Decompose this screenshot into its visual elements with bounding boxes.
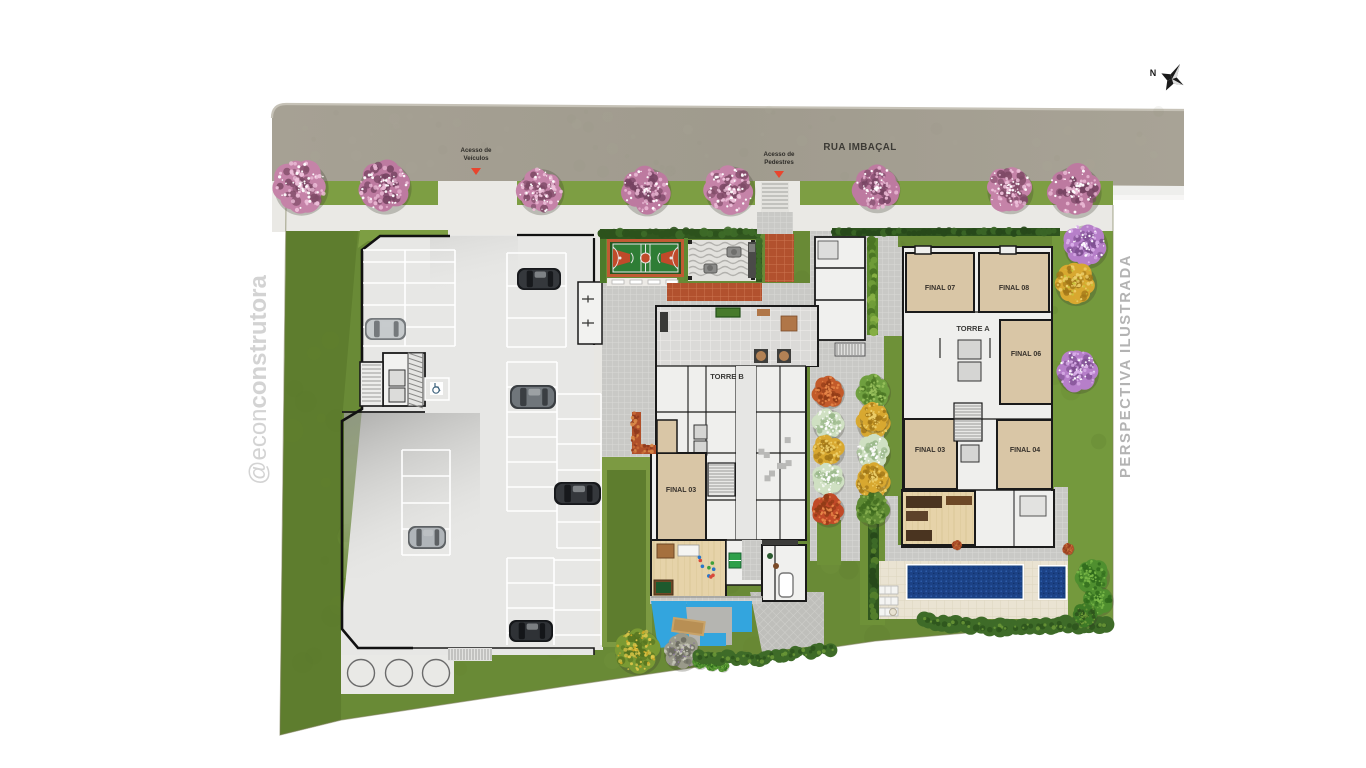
- svg-text:FINAL 04: FINAL 04: [1010, 447, 1040, 454]
- svg-text:FINAL 06: FINAL 06: [1011, 351, 1041, 358]
- svg-text:@econconstrutora: @econconstrutora: [245, 274, 272, 484]
- svg-text:TORRE B: TORRE B: [710, 372, 744, 381]
- svg-text:PERSPECTIVA ILUSTRADA: PERSPECTIVA ILUSTRADA: [1118, 254, 1134, 478]
- svg-text:Veículos: Veículos: [463, 155, 489, 162]
- svg-text:FINAL 03: FINAL 03: [666, 487, 696, 494]
- svg-text:N: N: [1150, 68, 1157, 78]
- svg-text:Pedestres: Pedestres: [764, 159, 794, 166]
- svg-text:FINAL 03: FINAL 03: [915, 447, 945, 454]
- svg-text:RUA IMBAÇAL: RUA IMBAÇAL: [823, 142, 896, 153]
- svg-text:Acesso de: Acesso de: [461, 147, 493, 154]
- svg-text:FINAL 07: FINAL 07: [925, 285, 955, 292]
- svg-text:Acesso de: Acesso de: [764, 151, 796, 158]
- svg-text:FINAL 08: FINAL 08: [999, 285, 1029, 292]
- svg-text:TORRE A: TORRE A: [956, 324, 990, 333]
